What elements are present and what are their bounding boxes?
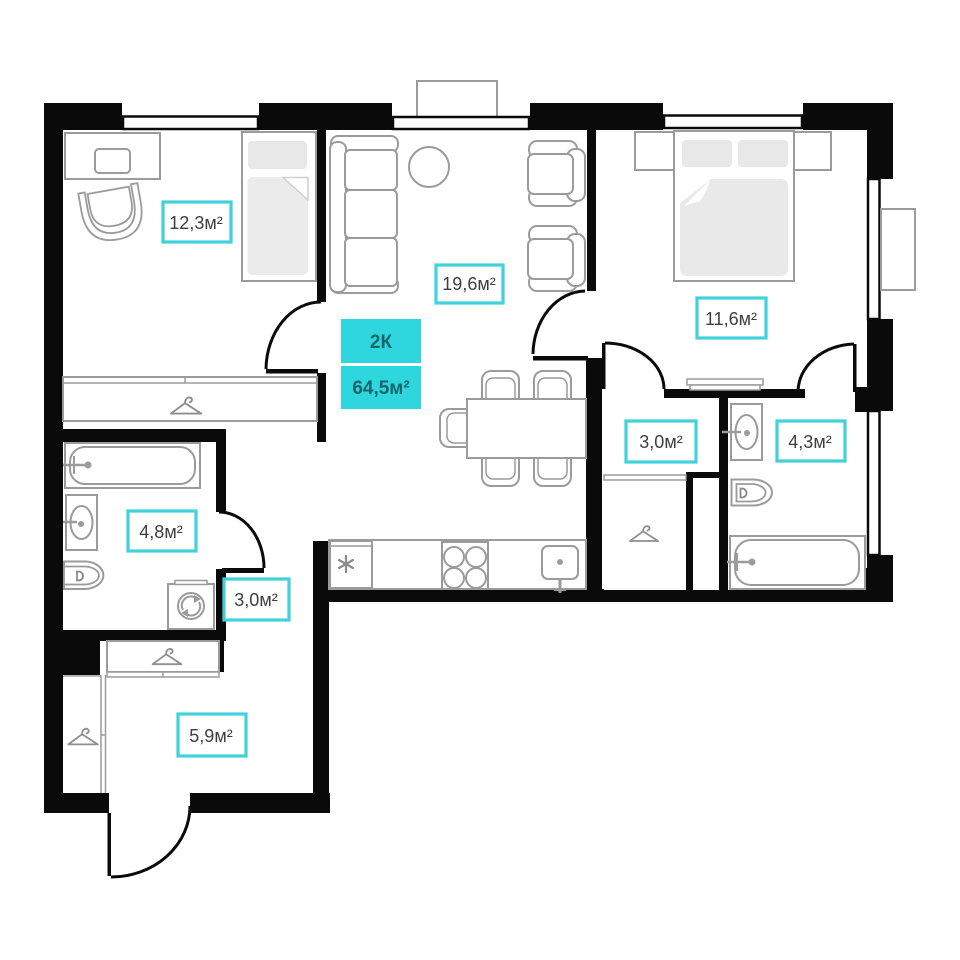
svg-text:5,9м²: 5,9м²: [189, 726, 232, 746]
svg-text:3,0м²: 3,0м²: [639, 432, 682, 452]
svg-text:3,0м²: 3,0м²: [234, 590, 277, 610]
svg-text:64,5м²: 64,5м²: [352, 378, 409, 399]
svg-text:19,6м²: 19,6м²: [442, 274, 495, 294]
svg-text:4,8м²: 4,8м²: [139, 522, 182, 542]
svg-text:11,6м²: 11,6м²: [705, 309, 757, 329]
svg-text:4,3м²: 4,3м²: [788, 432, 831, 452]
svg-text:2К: 2К: [370, 332, 393, 353]
svg-text:12,3м²: 12,3м²: [169, 213, 222, 233]
